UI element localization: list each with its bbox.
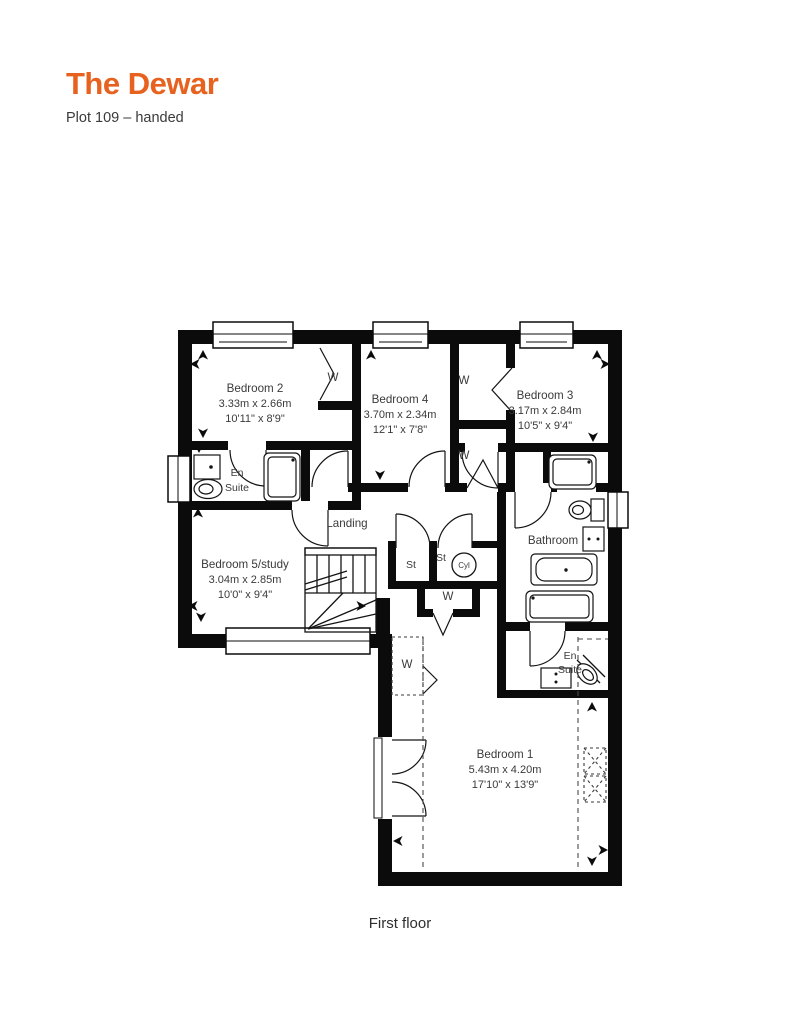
svg-text:3.04m x 2.85m: 3.04m x 2.85m — [209, 574, 282, 586]
label-wardrobe-eaves: W — [402, 658, 413, 671]
window-bedroom2 — [213, 322, 293, 348]
door-bedroom5 — [292, 510, 328, 546]
label-wardrobe-corridor: W — [443, 590, 454, 603]
label-wardrobe-bedroom2: W — [328, 371, 339, 384]
bath — [531, 554, 597, 585]
svg-text:3.17m x 2.84m: 3.17m x 2.84m — [509, 405, 582, 417]
window-bathroom — [608, 492, 628, 528]
door-store-1 — [396, 514, 430, 548]
door-ensuite-right — [530, 631, 565, 666]
label-store-2: St — [436, 552, 446, 564]
french-doors-bedroom1 — [374, 737, 426, 819]
svg-text:5.43m x 4.20m: 5.43m x 4.20m — [469, 764, 542, 776]
label-bedroom5: Bedroom 5/study 3.04m x 2.85m 10'0" x 9'… — [201, 558, 289, 601]
door-store-2 — [438, 514, 472, 548]
rooflight-1 — [584, 748, 606, 774]
svg-text:17'10" x 13'9": 17'10" x 13'9" — [472, 779, 539, 791]
floor-plan-drawing: Bedroom 2 3.33m x 2.66m 10'11" x 8'9" Be… — [0, 0, 800, 1036]
label-bedroom4: Bedroom 4 3.70m x 2.34m 12'1" x 7'8" — [364, 393, 437, 436]
svg-text:Bedroom 5/study: Bedroom 5/study — [201, 558, 289, 571]
label-ensuite-right: En Suite — [558, 650, 582, 676]
basin-bathroom — [583, 527, 604, 551]
svg-text:Bedroom 2: Bedroom 2 — [227, 382, 284, 395]
door-bedroom4 — [409, 451, 445, 487]
floor-caption: First floor — [0, 915, 800, 932]
label-landing: Landing — [326, 517, 367, 530]
label-bathroom: Bathroom — [528, 534, 578, 547]
toilet-ensuite-left — [194, 480, 222, 499]
door-closet-landing — [467, 460, 498, 488]
floorplan-page: The Dewar Plot 109 – handed — [0, 0, 800, 1036]
shower-bathroom — [549, 455, 596, 489]
label-store-1: St — [406, 559, 416, 571]
svg-text:Bedroom 1: Bedroom 1 — [477, 748, 534, 761]
svg-text:En: En — [564, 650, 577, 662]
svg-text:3.33m x 2.66m: 3.33m x 2.66m — [219, 398, 292, 410]
window-bedroom3 — [520, 322, 573, 348]
door-bedroom2 — [312, 451, 348, 487]
svg-text:En: En — [231, 467, 244, 479]
svg-text:Bedroom 4: Bedroom 4 — [372, 393, 429, 406]
label-bedroom2: Bedroom 2 3.33m x 2.66m 10'11" x 8'9" — [219, 382, 292, 425]
window-ensuite-left — [168, 456, 190, 502]
shower-ensuite-left — [264, 453, 300, 501]
label-bedroom3: Bedroom 3 3.17m x 2.84m 10'5" x 9'4" — [509, 389, 582, 432]
rooflight-2 — [584, 776, 606, 802]
label-cylinder: Cyl — [458, 561, 470, 570]
door-wardrobe-corridor — [433, 613, 453, 635]
svg-text:Suite: Suite — [558, 664, 582, 676]
svg-text:12'1" x 7'8": 12'1" x 7'8" — [373, 424, 427, 436]
toilet-bathroom — [569, 499, 604, 521]
label-wardrobe-landing: W — [459, 449, 470, 462]
door-wardrobe-eaves — [423, 666, 437, 694]
door-bathroom — [515, 492, 551, 528]
stairs — [305, 548, 376, 632]
basin-ensuite-left — [194, 455, 220, 479]
label-bedroom1: Bedroom 1 5.43m x 4.20m 17'10" x 13'9" — [469, 748, 542, 791]
label-wardrobe-bedroom3: W — [459, 374, 470, 387]
svg-text:Suite: Suite — [225, 482, 249, 494]
svg-text:Bedroom 3: Bedroom 3 — [517, 389, 574, 402]
window-bedroom4 — [373, 322, 428, 348]
label-ensuite-left: En Suite — [225, 467, 249, 494]
svg-text:10'5" x 9'4": 10'5" x 9'4" — [518, 420, 572, 432]
svg-text:3.70m x 2.34m: 3.70m x 2.34m — [364, 409, 437, 421]
svg-text:10'0" x 9'4": 10'0" x 9'4" — [218, 589, 272, 601]
svg-text:10'11" x 8'9": 10'11" x 8'9" — [225, 413, 285, 425]
shower-ensuite-right-unit — [526, 591, 593, 622]
